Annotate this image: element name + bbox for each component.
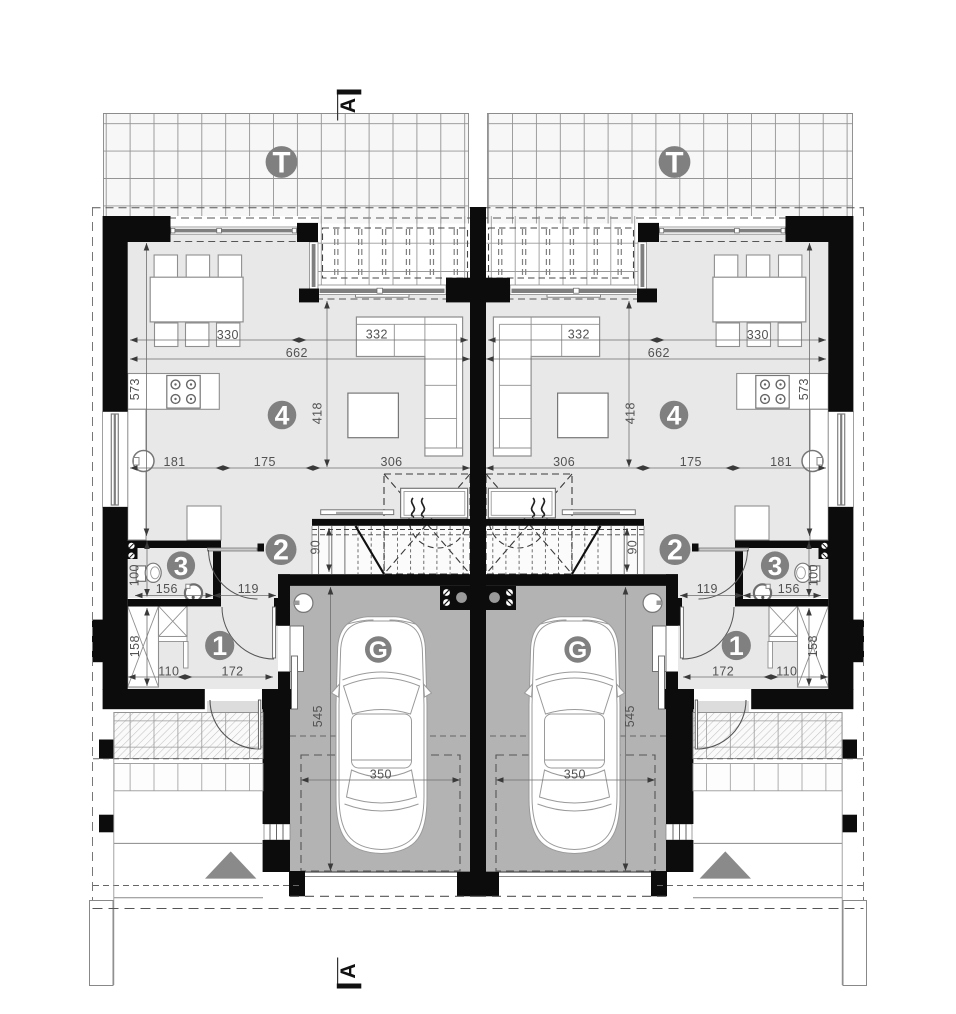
svg-text:350: 350 xyxy=(564,768,586,782)
svg-text:119: 119 xyxy=(238,582,259,596)
svg-text:1: 1 xyxy=(729,631,744,661)
svg-text:156: 156 xyxy=(156,582,178,596)
svg-text:306: 306 xyxy=(380,455,402,469)
svg-text:172: 172 xyxy=(712,665,734,679)
svg-text:4: 4 xyxy=(275,400,290,430)
svg-text:662: 662 xyxy=(286,346,308,360)
svg-text:110: 110 xyxy=(158,665,179,679)
svg-text:G: G xyxy=(369,637,388,664)
svg-text:A: A xyxy=(337,98,360,113)
svg-text:350: 350 xyxy=(370,768,392,782)
svg-text:G: G xyxy=(568,637,587,664)
svg-text:662: 662 xyxy=(648,346,670,360)
svg-text:90: 90 xyxy=(309,540,323,555)
svg-text:330: 330 xyxy=(217,328,239,342)
svg-text:156: 156 xyxy=(778,582,800,596)
svg-text:545: 545 xyxy=(311,705,325,727)
svg-text:3: 3 xyxy=(768,551,783,581)
svg-text:100: 100 xyxy=(128,564,142,586)
svg-text:545: 545 xyxy=(623,705,637,727)
svg-text:332: 332 xyxy=(568,328,590,342)
svg-text:3: 3 xyxy=(174,551,189,581)
svg-text:T: T xyxy=(665,147,683,180)
svg-text:4: 4 xyxy=(667,400,682,430)
svg-text:172: 172 xyxy=(221,665,243,679)
svg-text:1: 1 xyxy=(212,631,227,661)
svg-text:100: 100 xyxy=(807,564,821,586)
svg-text:158: 158 xyxy=(128,635,142,657)
svg-text:330: 330 xyxy=(747,328,769,342)
svg-text:332: 332 xyxy=(366,328,388,342)
svg-text:2: 2 xyxy=(273,535,289,567)
svg-text:T: T xyxy=(272,147,290,180)
svg-text:119: 119 xyxy=(697,582,718,596)
svg-text:573: 573 xyxy=(128,378,142,400)
svg-text:181: 181 xyxy=(770,455,792,469)
svg-text:175: 175 xyxy=(254,455,276,469)
svg-text:418: 418 xyxy=(624,402,638,424)
svg-text:90: 90 xyxy=(626,540,640,555)
svg-text:418: 418 xyxy=(311,402,325,424)
svg-text:573: 573 xyxy=(797,378,811,400)
svg-text:306: 306 xyxy=(553,455,575,469)
svg-text:175: 175 xyxy=(680,455,702,469)
svg-text:110: 110 xyxy=(776,665,797,679)
svg-text:2: 2 xyxy=(667,535,683,567)
svg-text:A: A xyxy=(337,963,360,978)
svg-text:181: 181 xyxy=(163,455,185,469)
svg-text:158: 158 xyxy=(806,635,820,657)
